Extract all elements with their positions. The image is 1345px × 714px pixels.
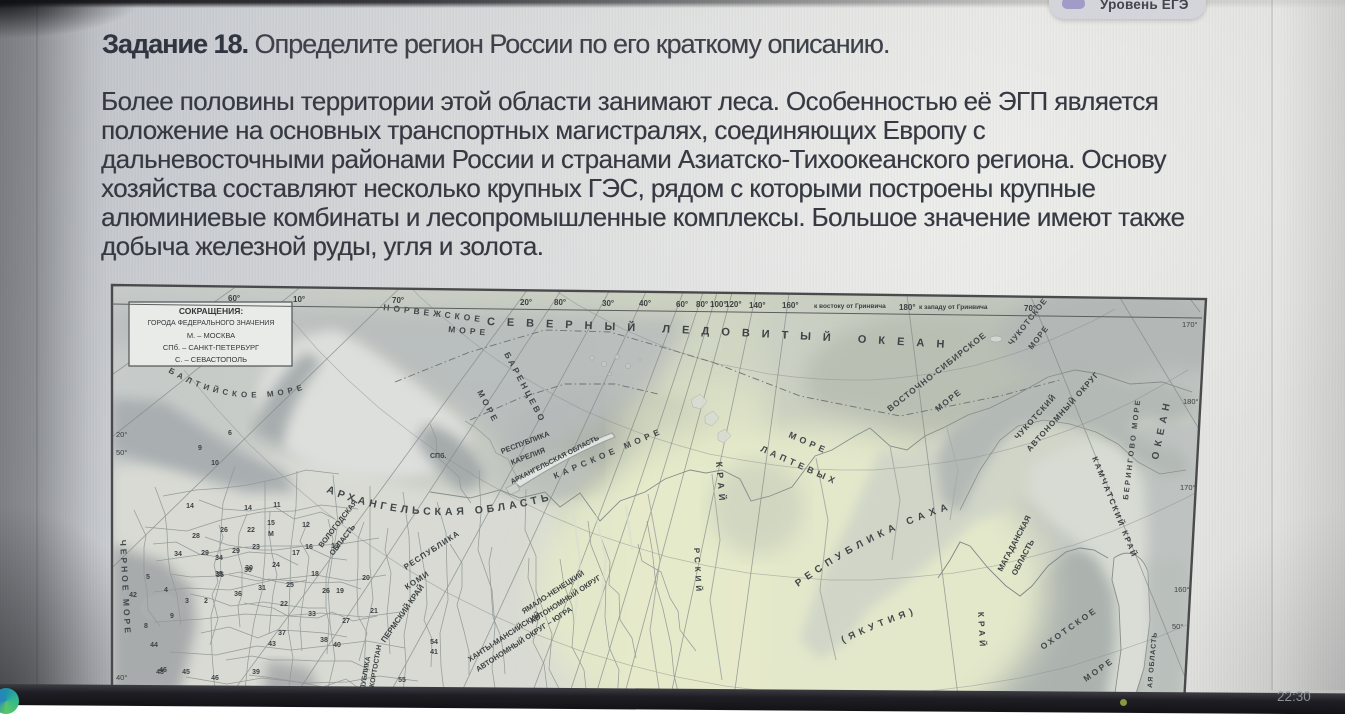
svg-text:15: 15 — [267, 520, 275, 527]
svg-text:38: 38 — [320, 637, 328, 644]
svg-text:40: 40 — [333, 642, 341, 649]
svg-text:19: 19 — [336, 588, 344, 595]
svg-text:50°: 50° — [116, 448, 127, 457]
svg-text:160°: 160° — [1174, 585, 1190, 594]
svg-text:46: 46 — [211, 675, 219, 682]
svg-text:26: 26 — [322, 588, 330, 595]
svg-text:29: 29 — [201, 550, 209, 557]
svg-text:34: 34 — [174, 551, 182, 558]
svg-text:31: 31 — [258, 585, 266, 592]
svg-text:СПб.: СПб. — [430, 452, 446, 460]
svg-text:18: 18 — [311, 571, 319, 578]
svg-text:30°: 30° — [602, 299, 614, 308]
svg-text:54: 54 — [430, 639, 438, 646]
svg-text:33: 33 — [308, 611, 316, 618]
svg-text:6: 6 — [228, 430, 232, 437]
svg-text:СПб. – САНКТ-ПЕТЕРБУРГ: СПб. – САНКТ-ПЕТЕРБУРГ — [163, 343, 259, 352]
svg-text:44: 44 — [150, 642, 158, 649]
svg-text:27: 27 — [342, 618, 350, 625]
svg-text:45: 45 — [182, 669, 190, 676]
svg-text:40°: 40° — [639, 299, 651, 308]
svg-text:22: 22 — [280, 601, 288, 608]
svg-text:2: 2 — [204, 598, 208, 605]
svg-text:34: 34 — [215, 555, 223, 562]
svg-text:23: 23 — [252, 544, 260, 551]
svg-text:11: 11 — [273, 502, 281, 509]
svg-text:180°: 180° — [899, 303, 916, 312]
svg-text:17: 17 — [292, 550, 300, 557]
svg-text:40°: 40° — [116, 673, 127, 682]
svg-text:20: 20 — [362, 575, 370, 582]
svg-text:М: М — [268, 531, 274, 538]
svg-text:170°: 170° — [1180, 483, 1196, 492]
svg-text:14: 14 — [186, 503, 194, 510]
svg-text:26: 26 — [220, 527, 228, 534]
svg-text:170°: 170° — [1182, 320, 1198, 329]
svg-text:120°: 120° — [725, 300, 742, 309]
svg-text:29: 29 — [232, 548, 240, 555]
svg-text:20°: 20° — [520, 298, 532, 307]
svg-text:41: 41 — [430, 649, 438, 656]
svg-text:140°: 140° — [749, 301, 766, 310]
svg-text:35: 35 — [216, 572, 224, 579]
svg-text:180°: 180° — [1183, 397, 1199, 406]
svg-text:25: 25 — [286, 582, 294, 589]
svg-text:55: 55 — [398, 677, 406, 684]
svg-text:5: 5 — [146, 574, 150, 581]
svg-text:50°: 50° — [1172, 622, 1183, 631]
svg-text:24: 24 — [272, 562, 280, 569]
svg-text:43: 43 — [268, 641, 276, 648]
svg-text:3: 3 — [185, 598, 189, 605]
svg-text:9: 9 — [198, 445, 202, 452]
svg-text:36: 36 — [234, 591, 242, 598]
svg-text:37: 37 — [278, 630, 286, 637]
svg-text:к западу от Гринвича: к западу от Гринвича — [919, 304, 988, 311]
svg-text:48: 48 — [156, 669, 164, 676]
svg-text:20°: 20° — [116, 430, 127, 439]
svg-text:22: 22 — [247, 527, 255, 534]
svg-text:28: 28 — [192, 533, 200, 540]
svg-text:СОКРАЩЕНИЯ:: СОКРАЩЕНИЯ: — [179, 306, 243, 316]
svg-text:60°: 60° — [228, 294, 240, 303]
svg-text:12: 12 — [302, 522, 310, 529]
svg-text:ГОРОДА ФЕДЕРАЛЬНОГО ЗНАЧЕНИЯ: ГОРОДА ФЕДЕРАЛЬНОГО ЗНАЧЕНИЯ — [148, 320, 275, 327]
svg-text:С. – СЕВАСТОПОЛЬ: С. – СЕВАСТОПОЛЬ — [175, 355, 247, 364]
svg-text:39: 39 — [252, 669, 260, 676]
svg-text:КРАЙ: КРАЙ — [976, 612, 989, 651]
svg-text:21: 21 — [370, 608, 378, 615]
svg-text:10: 10 — [211, 460, 219, 467]
svg-text:30: 30 — [244, 567, 252, 574]
svg-text:80°: 80° — [554, 298, 566, 307]
svg-text:160°: 160° — [782, 301, 799, 310]
svg-text:16: 16 — [305, 544, 313, 551]
svg-text:9: 9 — [170, 613, 174, 620]
svg-text:4: 4 — [164, 587, 168, 594]
svg-text:60°: 60° — [676, 300, 688, 309]
svg-text:14: 14 — [244, 505, 252, 512]
svg-text:10°: 10° — [293, 295, 305, 304]
svg-text:М. – МОСКВА: М. – МОСКВА — [187, 331, 235, 340]
svg-text:к востоку от Гринвича: к востоку от Гринвича — [814, 303, 886, 310]
svg-text:80°: 80° — [696, 300, 708, 309]
svg-text:8: 8 — [144, 623, 148, 630]
